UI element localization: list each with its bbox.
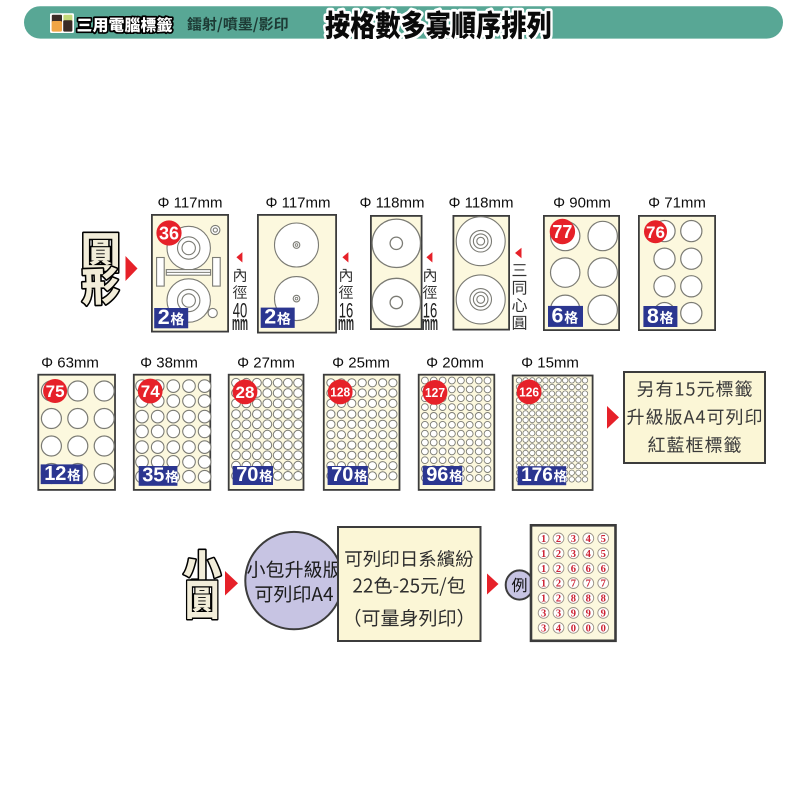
svg-text:77: 77: [552, 222, 572, 242]
svg-text:2: 2: [556, 549, 561, 560]
svg-text:8: 8: [571, 594, 576, 605]
svg-text:4: 4: [586, 534, 592, 545]
svg-text:Φ 25mm: Φ 25mm: [332, 355, 390, 372]
svg-text:0: 0: [571, 623, 576, 634]
svg-text:96: 96: [426, 464, 448, 486]
svg-text:2: 2: [556, 594, 561, 605]
svg-text:1: 1: [541, 594, 546, 605]
svg-text:1: 1: [541, 534, 546, 545]
svg-text:7: 7: [586, 579, 591, 590]
svg-text:mm: mm: [232, 313, 248, 335]
svg-text:2: 2: [264, 305, 276, 329]
svg-text:Φ 38mm: Φ 38mm: [140, 355, 198, 372]
svg-text:9: 9: [586, 609, 591, 620]
svg-text:5: 5: [601, 534, 606, 545]
svg-text:75: 75: [46, 382, 65, 401]
svg-text:2: 2: [158, 305, 170, 329]
svg-text:5: 5: [601, 549, 606, 560]
svg-text:28: 28: [236, 383, 255, 402]
svg-text:3: 3: [541, 623, 546, 634]
svg-text:36: 36: [159, 223, 179, 243]
svg-text:Φ 20mm: Φ 20mm: [426, 355, 484, 372]
svg-text:4: 4: [556, 623, 562, 634]
svg-text:6: 6: [601, 564, 606, 575]
svg-text:8: 8: [601, 594, 606, 605]
svg-text:127: 127: [425, 386, 445, 401]
svg-text:2: 2: [556, 564, 561, 575]
svg-text:6: 6: [586, 564, 591, 575]
svg-text:8: 8: [586, 594, 591, 605]
svg-text:Φ 15mm: Φ 15mm: [521, 355, 579, 372]
svg-text:0: 0: [586, 623, 591, 634]
svg-text:Φ 118mm: Φ 118mm: [448, 195, 513, 212]
svg-text:2: 2: [556, 534, 561, 545]
svg-text:35: 35: [142, 465, 164, 487]
svg-text:3: 3: [556, 609, 561, 620]
svg-text:9: 9: [601, 609, 606, 620]
svg-text:1: 1: [541, 579, 546, 590]
svg-text:126: 126: [519, 385, 539, 400]
svg-text:0: 0: [601, 623, 606, 634]
svg-text:70: 70: [236, 464, 258, 486]
svg-text:mm: mm: [338, 313, 354, 335]
svg-text:3: 3: [541, 609, 546, 620]
svg-text:70: 70: [331, 464, 353, 486]
svg-text:76: 76: [646, 223, 665, 242]
svg-text:Φ 71mm: Φ 71mm: [648, 195, 706, 212]
svg-text:6: 6: [571, 564, 576, 575]
svg-text:128: 128: [330, 385, 350, 400]
svg-text:3: 3: [571, 534, 576, 545]
svg-text:6: 6: [552, 304, 564, 328]
svg-text:2: 2: [556, 579, 561, 590]
svg-text:Φ 117mm: Φ 117mm: [157, 195, 222, 212]
svg-text:Φ 117mm: Φ 117mm: [265, 195, 330, 212]
svg-text:Φ 118mm: Φ 118mm: [359, 195, 424, 212]
svg-text:74: 74: [141, 382, 160, 401]
svg-text:9: 9: [571, 609, 576, 620]
svg-text:Φ 90mm: Φ 90mm: [553, 195, 611, 212]
svg-text:12: 12: [44, 463, 66, 485]
svg-text:mm: mm: [422, 313, 438, 335]
svg-text:7: 7: [601, 579, 606, 590]
svg-text:7: 7: [571, 579, 576, 590]
svg-text:1: 1: [541, 549, 546, 560]
svg-text:3: 3: [571, 549, 576, 560]
svg-text:4: 4: [586, 549, 592, 560]
svg-text:176: 176: [521, 465, 553, 486]
svg-text:8: 8: [647, 304, 659, 328]
svg-text:1: 1: [541, 564, 546, 575]
svg-text:Φ 27mm: Φ 27mm: [237, 355, 295, 372]
svg-text:Φ 63mm: Φ 63mm: [41, 355, 99, 372]
